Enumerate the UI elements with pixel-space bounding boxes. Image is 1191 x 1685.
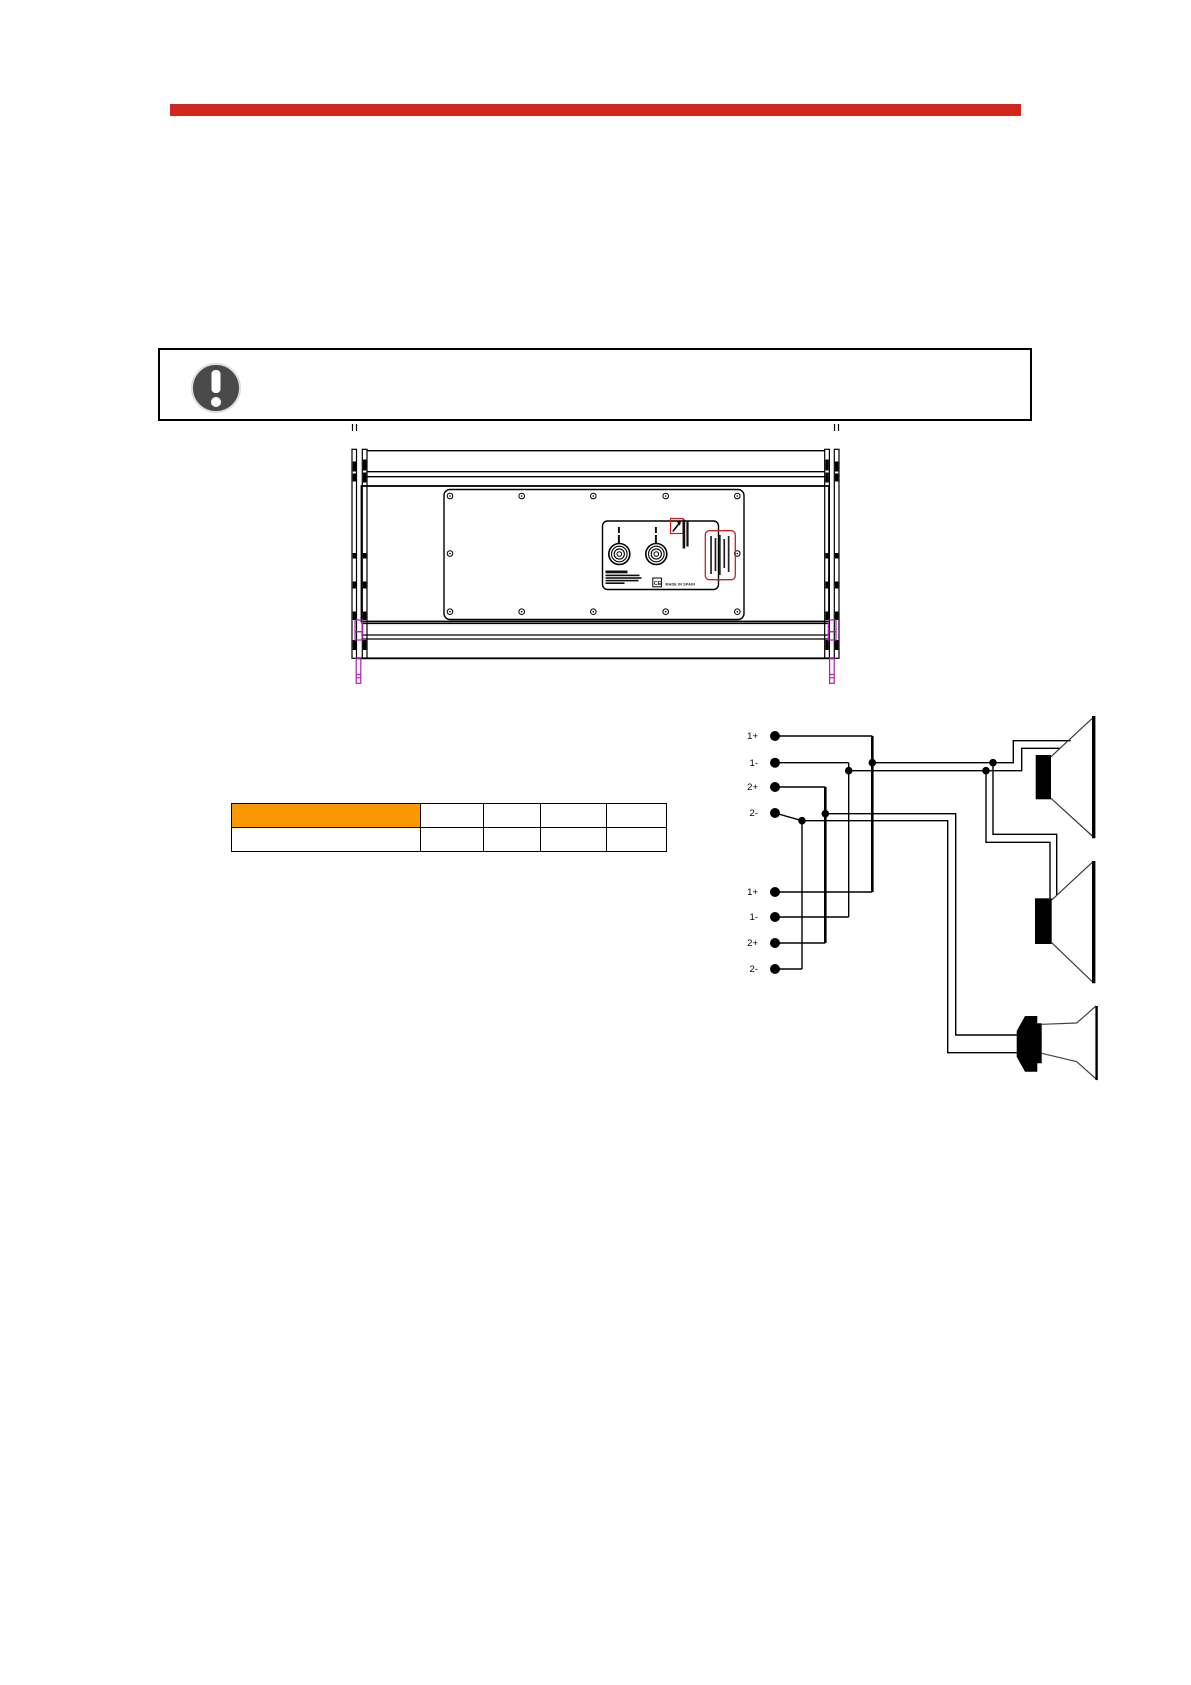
table-header-cell bbox=[606, 804, 666, 827]
woofer2-icon bbox=[1035, 861, 1094, 983]
table-header-cell bbox=[232, 804, 420, 827]
table-header-cell bbox=[540, 804, 606, 827]
terminal-label: 2- bbox=[750, 808, 758, 819]
table-cell bbox=[540, 827, 606, 851]
terminal-dots bbox=[770, 887, 780, 974]
terminal-label: 1- bbox=[750, 758, 758, 769]
cabinet-top-lines bbox=[367, 451, 825, 477]
panel-screws bbox=[447, 493, 740, 614]
table-header-cell bbox=[420, 804, 483, 827]
terminal-dots bbox=[770, 731, 780, 818]
wire-woofer1-plus bbox=[993, 741, 1071, 763]
ce-mark-text: CE bbox=[654, 581, 662, 587]
cabinet-rear-drawing: CE MADE IN SPAIN bbox=[352, 424, 839, 683]
cabinet-body bbox=[362, 486, 830, 622]
rigging-pins bbox=[355, 620, 836, 683]
terminal-label: 1+ bbox=[747, 887, 758, 898]
wiring-diagram: 1+ 1- 2+ 2- 1+ 1- 2+ 2- bbox=[747, 716, 1097, 1080]
manual-page: CE MADE IN SPAIN bbox=[0, 0, 1191, 1685]
spec-table bbox=[231, 803, 667, 852]
table-cell bbox=[232, 827, 420, 851]
cabinet-bottom-lines bbox=[362, 624, 830, 640]
terminal-label: 2- bbox=[750, 964, 758, 975]
wire-horn-minus bbox=[802, 821, 1017, 1053]
connector-label-marks bbox=[618, 527, 657, 543]
terminal-label: 1+ bbox=[747, 731, 758, 742]
ce-mark: CE bbox=[653, 578, 662, 587]
junction-dots bbox=[798, 759, 997, 825]
wires bbox=[775, 736, 1071, 1053]
horn-driver-icon bbox=[1017, 1006, 1098, 1080]
speakon-connector-link bbox=[646, 544, 667, 565]
rigging-rails bbox=[352, 449, 839, 658]
terminal-group-1: 1+ 1- 2+ 2- bbox=[747, 731, 780, 819]
terminal-group-2: 1+ 1- 2+ 2- bbox=[747, 887, 780, 975]
table-cell bbox=[420, 827, 483, 851]
terminal-label: 2+ bbox=[747, 938, 758, 949]
table-header-cell bbox=[483, 804, 540, 827]
manufacturer-text-marks bbox=[606, 571, 642, 585]
woofer1-icon bbox=[1036, 716, 1094, 838]
rating-label bbox=[705, 531, 735, 580]
wire-horn-plus bbox=[825, 814, 1017, 1035]
screw-row-middle bbox=[447, 551, 740, 557]
recessed-panel bbox=[444, 490, 744, 620]
horn-driver-body bbox=[1017, 1016, 1042, 1072]
table-cell bbox=[483, 827, 540, 851]
terminal-label: 1- bbox=[750, 912, 758, 923]
made-in-text: MADE IN SPAIN bbox=[666, 583, 696, 587]
logo-text-marks bbox=[683, 520, 689, 549]
table-cell bbox=[606, 827, 666, 851]
terminal-label: 2+ bbox=[747, 782, 758, 793]
rigging-rail-top-stubs bbox=[353, 424, 839, 431]
speakon-connector-in bbox=[609, 544, 630, 565]
